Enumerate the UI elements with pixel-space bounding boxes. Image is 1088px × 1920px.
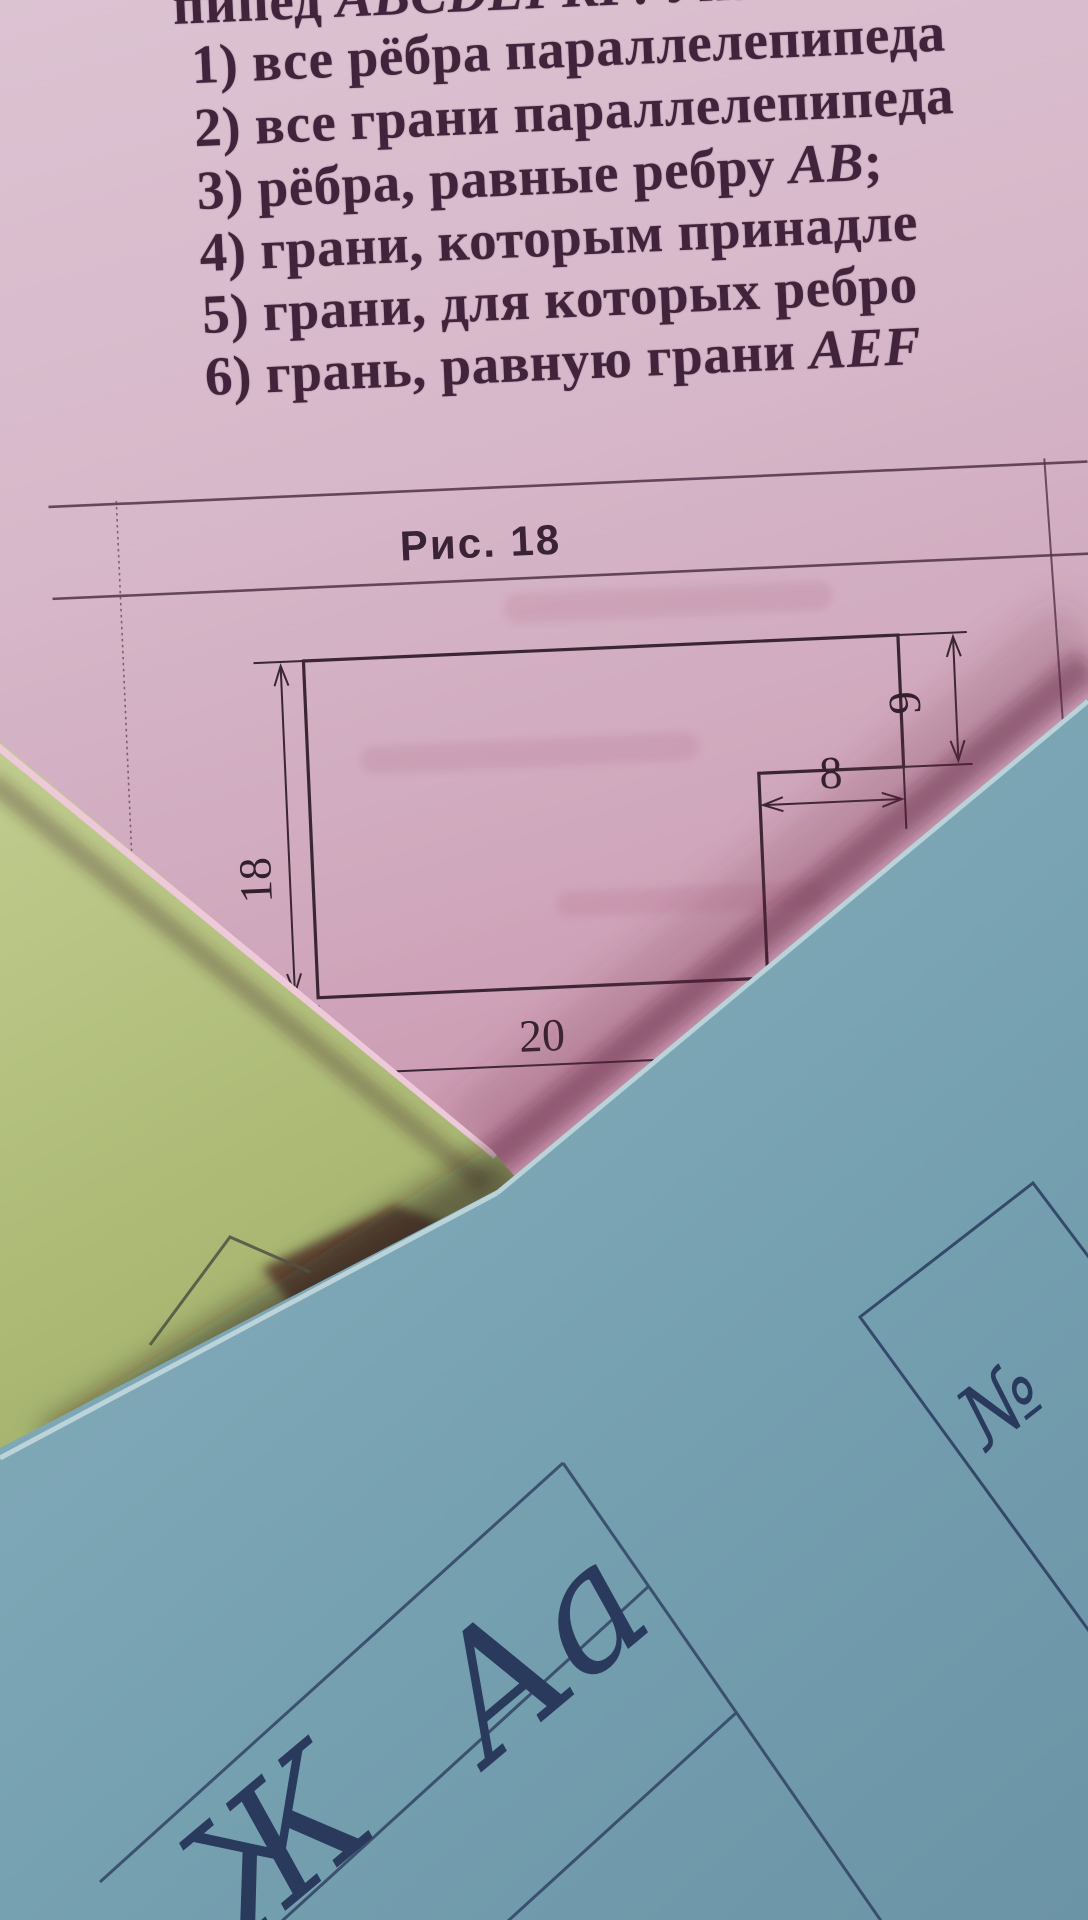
handwriting-row1: Аа [382,1505,684,1802]
handwriting-row2: Ж [135,1709,411,1920]
photo-canvas: пипед ABCDEFKP. Укажите 1)все рёбра пара… [0,0,1088,1920]
